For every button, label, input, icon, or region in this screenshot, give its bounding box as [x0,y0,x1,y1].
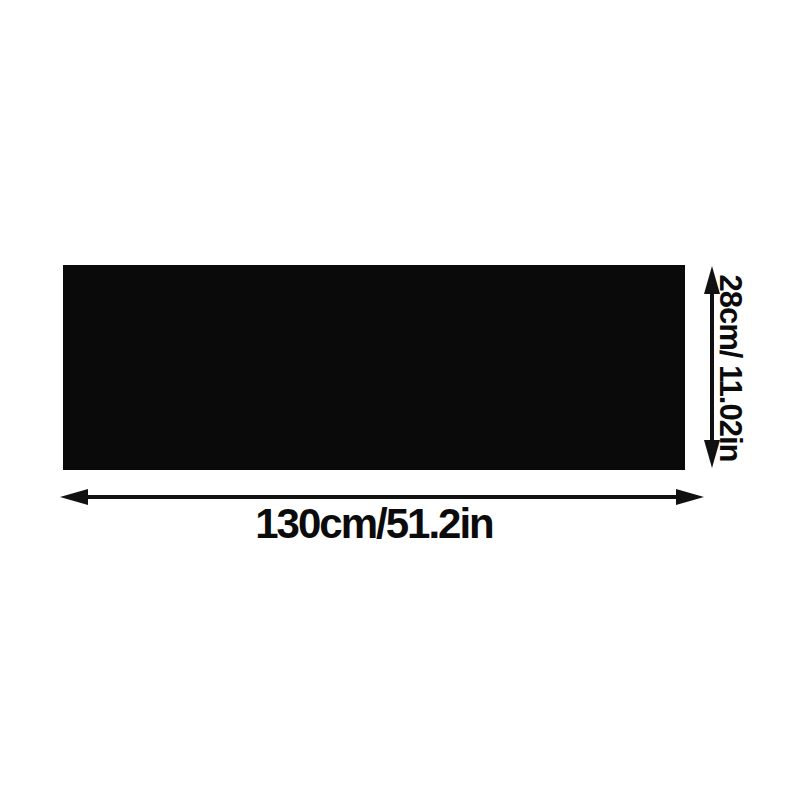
product-panel-rect [63,265,685,470]
diagram-shapes [0,0,800,800]
height-dimension-label: 28cm/ 11.02in [712,275,748,462]
width-dimension-label: 130cm/51.2in [63,500,685,548]
product-dimension-diagram: 130cm/51.2in 28cm/ 11.02in [0,0,800,800]
